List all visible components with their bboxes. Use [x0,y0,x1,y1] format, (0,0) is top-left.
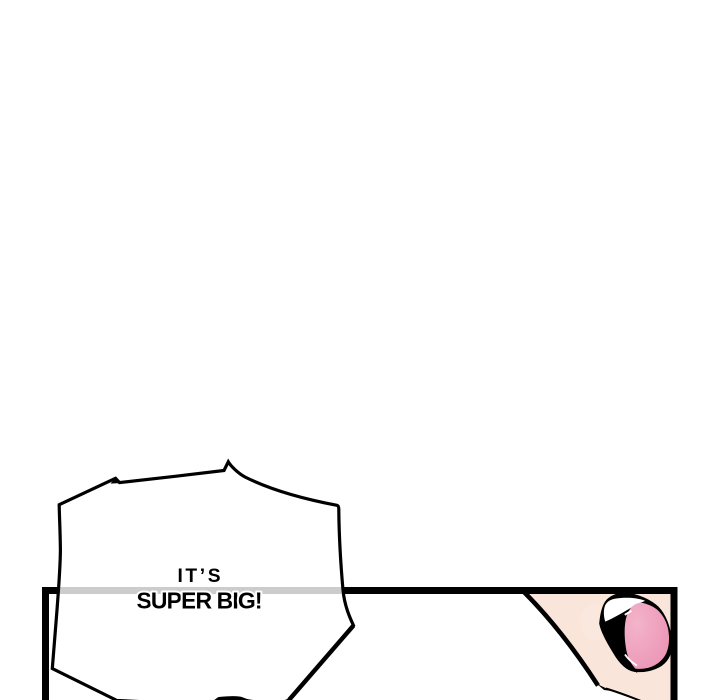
svg-text:SUPER BIG!: SUPER BIG! [137,587,263,613]
